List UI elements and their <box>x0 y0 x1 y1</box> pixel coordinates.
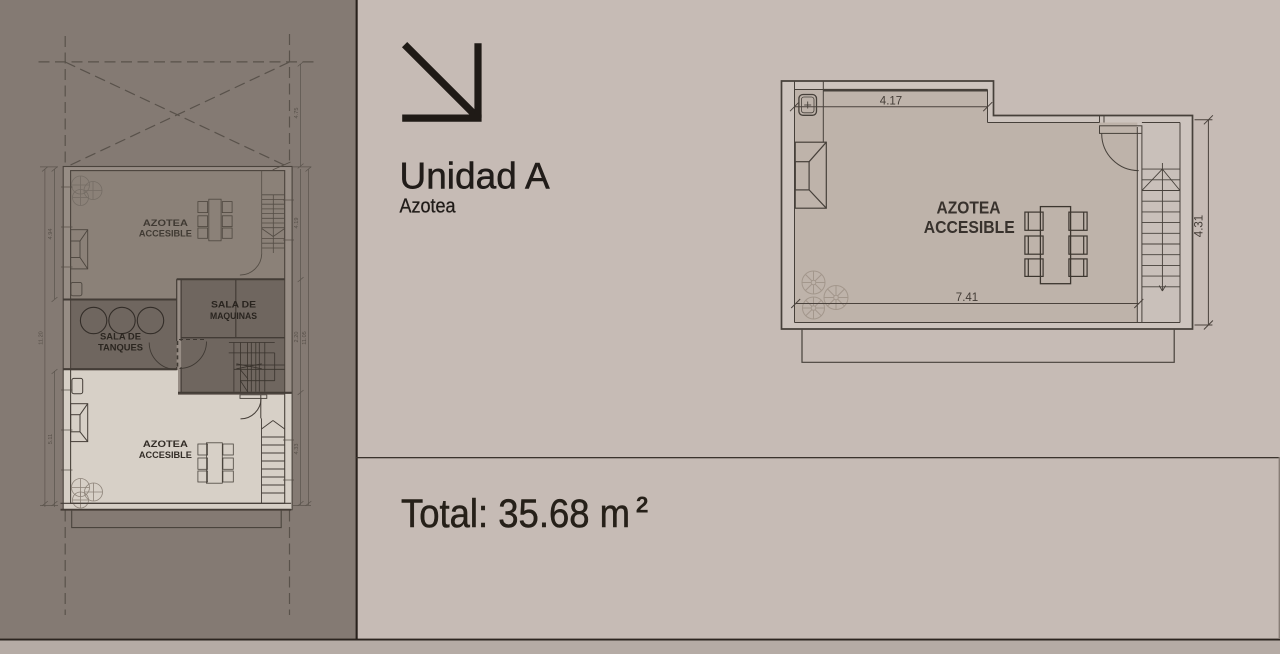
svg-text:Unidad A: Unidad A <box>400 155 550 197</box>
svg-text:ACCESIBLE: ACCESIBLE <box>924 217 1015 237</box>
svg-text:Total: 35.68 m: Total: 35.68 m <box>401 492 630 536</box>
svg-text:11.05: 11.05 <box>302 331 308 345</box>
svg-text:11.20: 11.20 <box>39 331 45 345</box>
svg-text:SALA DE: SALA DE <box>100 332 141 342</box>
svg-text:ACCESIBLE: ACCESIBLE <box>139 229 192 240</box>
svg-text:7.41: 7.41 <box>956 292 978 304</box>
svg-text:5.11: 5.11 <box>48 434 54 444</box>
svg-text:4.17: 4.17 <box>880 96 902 108</box>
svg-text:4.94: 4.94 <box>48 229 54 240</box>
svg-text:AZOTEA: AZOTEA <box>937 198 1001 218</box>
svg-text:2.20: 2.20 <box>294 332 300 343</box>
svg-text:4.33: 4.33 <box>294 444 300 455</box>
svg-text:SALA DE: SALA DE <box>211 300 257 311</box>
svg-text:4.19: 4.19 <box>294 218 300 229</box>
svg-text:2: 2 <box>636 491 649 517</box>
svg-text:MAQUINAS: MAQUINAS <box>210 311 258 322</box>
svg-text:ACCESIBLE: ACCESIBLE <box>139 450 192 461</box>
svg-text:4.75: 4.75 <box>294 108 300 119</box>
svg-text:4.31: 4.31 <box>1194 215 1206 237</box>
svg-text:TANQUES: TANQUES <box>98 343 143 353</box>
svg-text:AZOTEA: AZOTEA <box>143 439 188 450</box>
svg-text:Azotea: Azotea <box>400 196 457 218</box>
svg-text:AZOTEA: AZOTEA <box>143 218 188 229</box>
